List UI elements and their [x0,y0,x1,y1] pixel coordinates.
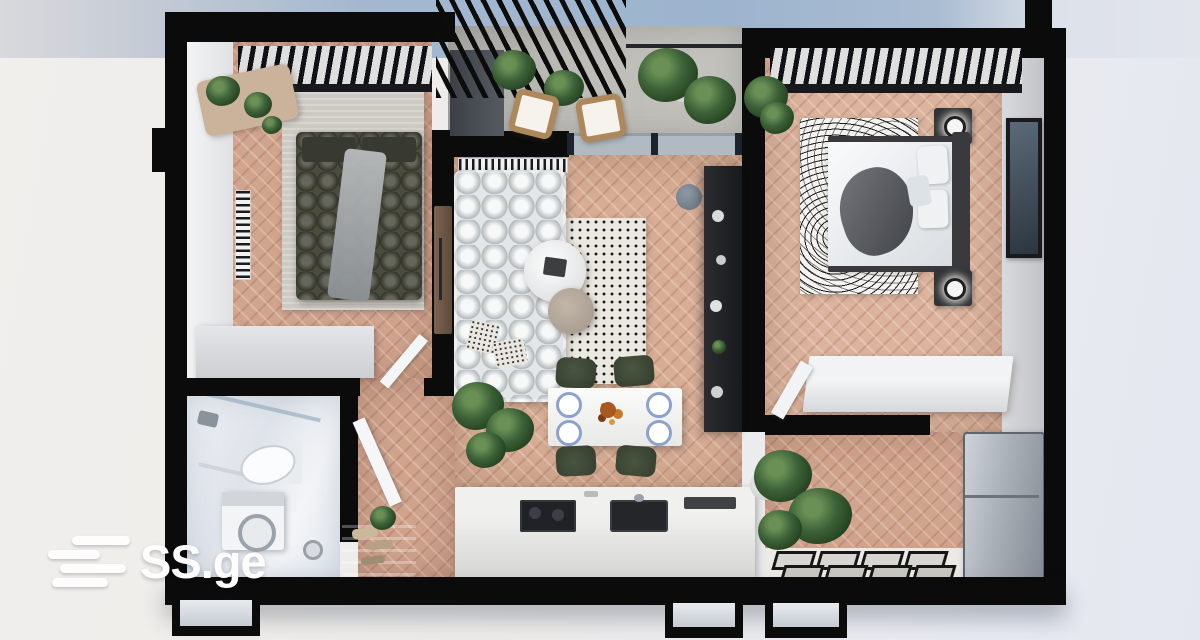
cooktop-burner-2 [552,509,564,521]
pergola-slats [436,0,626,98]
window-bedroom-right-frame [770,84,1022,93]
refrigerator-divider [965,495,1039,498]
pillar-top-right [1025,0,1052,30]
wall-art-frame [1006,118,1042,258]
counter-tray [684,497,736,509]
bed-right-frame-top [828,136,960,142]
plate-1 [556,392,582,418]
washing-machine-panel [222,492,284,506]
balcony-chair-2 [575,92,628,143]
window-bump-kitchen-1-glass [673,603,735,627]
plate-2 [646,392,672,418]
refrigerator [963,432,1045,586]
brand-text: SS.ge [140,534,266,589]
logo-bar-4 [52,578,108,587]
floor-plan-render: SS.ge [0,0,1200,640]
dining-chair-4 [615,444,657,477]
radiator-bedroom-left [235,190,251,280]
wardrobe-bedroom-left [196,326,374,378]
cooktop-burner-1 [529,507,541,519]
dining-chair-2 [613,354,655,387]
coffee-table-tray [543,257,567,278]
ottoman [548,288,594,334]
door-bedroom-left-living [434,206,452,334]
counter-item [584,491,598,497]
shelf-item-4 [711,386,723,398]
wall-bottom [165,577,1066,605]
wall-bedroom-right-bottom [765,415,930,435]
wall-top-left [165,12,455,42]
lamp-bottom [944,278,966,300]
dining-centerpiece-food [600,402,616,418]
pouf-blue [676,184,702,210]
shelving-column [704,166,742,432]
kitchen-sink [610,500,668,532]
wall-right [1044,28,1066,600]
dining-chair-3 [555,445,597,477]
door-handle [439,238,442,300]
logo-bar-3 [60,564,126,573]
shelf-item-2 [716,255,726,265]
sink-faucet [634,494,644,502]
wall-bedroom-left-bathroom-a [187,378,360,396]
logo-bar-1 [72,536,130,545]
window-bump-kitchen-2-glass [773,603,839,627]
plate-4 [646,420,672,446]
shelf-item-1 [712,210,724,222]
window-bedroom-right [770,48,1022,84]
pillar-left [152,128,187,172]
window-bump-bathroom-glass [180,600,252,626]
cooktop [520,500,576,532]
balcony-railing [626,44,742,48]
floor-drain [303,540,323,560]
ss-ge-watermark: SS.ge [46,534,266,589]
ss-ge-stripes-icon [46,536,118,587]
wall-left [165,12,187,605]
dining-chair-1 [555,357,597,390]
sofa-pillow-2 [492,337,528,368]
logo-bar-2 [48,550,100,559]
plate-3 [556,420,582,446]
headboard [952,132,970,276]
shelf-item-3 [710,300,722,312]
wall-bedroom-left-bathroom-b [424,378,454,396]
dresser-bench [803,356,1014,412]
